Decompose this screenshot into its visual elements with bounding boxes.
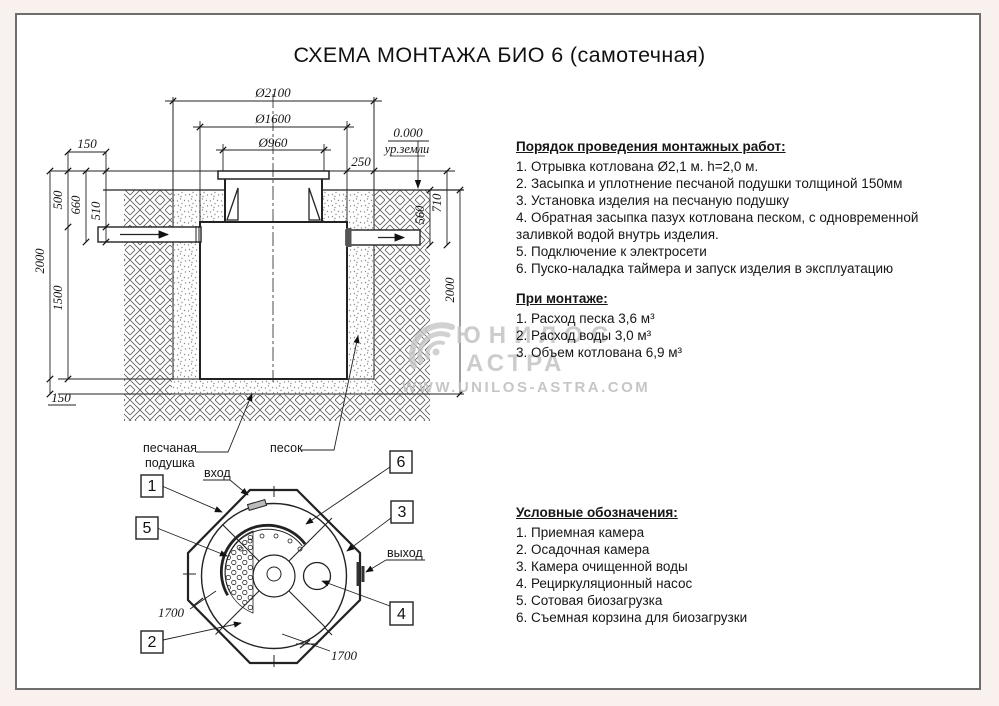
plan-dimensions [190, 591, 330, 651]
work-order-item: 6. Пуско-наладка таймера и запуск издели… [516, 260, 968, 277]
ground-level-label: ур.земли [383, 142, 430, 156]
dim-dia-960: Ø960 [258, 135, 288, 150]
dim-500: 500 [51, 190, 65, 210]
work-order-item: 3. Установка изделия на песчаную подушку [516, 192, 968, 209]
dim-1700-bottom: 1700 [331, 648, 358, 663]
legend-item: 3. Камера очищенной воды [516, 558, 968, 575]
legend-item: 2. Осадочная камера [516, 541, 968, 558]
dim-510: 510 [89, 201, 103, 221]
dim-2000-right: 2000 [443, 277, 457, 303]
left-dimensions [48, 152, 106, 405]
dim-560: 560 [413, 205, 427, 225]
central-riser [253, 555, 295, 597]
dim-250: 250 [351, 154, 371, 169]
callout-6: 6 [397, 454, 406, 471]
dim-710: 710 [430, 193, 444, 213]
install-notes-section: При монтаже: 1. Расход песка 3,6 м³ 2. Р… [516, 291, 968, 361]
dim-dia-2100: Ø2100 [254, 85, 291, 100]
install-notes-title: При монтаже: [516, 291, 968, 306]
sand-label: песок [270, 441, 303, 455]
work-order-title: Порядок проведения монтажных работ: [516, 139, 968, 154]
page-title: СХЕМА МОНТАЖА БИО 6 (самотечная) [0, 43, 999, 68]
callout-boxes [136, 451, 413, 653]
installation-scheme-page: Ø2100 Ø1600 Ø960 250 150 0.000 ур.земли … [0, 0, 999, 706]
sand-cushion-label-1: песчаная [143, 441, 197, 455]
inlet-label: вход [204, 466, 231, 480]
recirculation-pump [304, 563, 331, 590]
legend-section: Условные обозначения: 1. Приемная камера… [516, 505, 968, 626]
work-order-item: 4. Обратная засыпка пазух котлована песк… [516, 209, 968, 243]
install-notes-item: 3. Объем котлована 6,9 м³ [516, 344, 968, 361]
install-notes-item: 2. Расход воды 3,0 м³ [516, 327, 968, 344]
work-order-item: 1. Отрывка котлована Ø2,1 м. h=2,0 м. [516, 158, 968, 175]
inlet-pipe [98, 226, 201, 243]
callout-3: 3 [398, 504, 407, 521]
work-order-item: 5. Подключение к электросети [516, 243, 968, 260]
work-order-item: 2. Засыпка и уплотнение песчаной подушки… [516, 175, 968, 192]
cross-section-view: Ø2100 Ø1600 Ø960 250 150 0.000 ур.земли … [33, 85, 464, 470]
inlet-stub [248, 500, 267, 511]
sand-cushion-label-2: подушка [145, 456, 195, 470]
legend-item: 4. Рециркуляционный насос [516, 575, 968, 592]
dim-150-top: 150 [77, 136, 97, 151]
legend-item: 6. Съемная корзина для биозагрузки [516, 609, 968, 626]
install-notes-item: 1. Расход песка 3,6 м³ [516, 310, 968, 327]
outlet-label: выход [387, 546, 423, 560]
legend-item: 1. Приемная камера [516, 524, 968, 541]
outlet-pipe [346, 228, 420, 247]
legend-title: Условные обозначения: [516, 505, 968, 520]
plan-view: 1 5 2 6 3 4 вход выход 1700 1700 [136, 451, 425, 667]
legend-item: 5. Сотовая биозагрузка [516, 592, 968, 609]
dim-1700-left: 1700 [158, 605, 185, 620]
work-order-section: Порядок проведения монтажных работ: 1. О… [516, 139, 968, 277]
dim-2000-left: 2000 [33, 248, 47, 274]
dim-660: 660 [69, 195, 83, 215]
callout-4: 4 [397, 606, 406, 623]
callout-5: 5 [143, 520, 152, 537]
dim-zero-level: 0.000 [393, 125, 423, 140]
callout-1: 1 [148, 478, 157, 495]
dim-1500: 1500 [51, 285, 65, 311]
callout-2: 2 [148, 634, 157, 651]
dim-150-bottom: 150 [51, 390, 71, 405]
dim-dia-1600: Ø1600 [254, 111, 291, 126]
